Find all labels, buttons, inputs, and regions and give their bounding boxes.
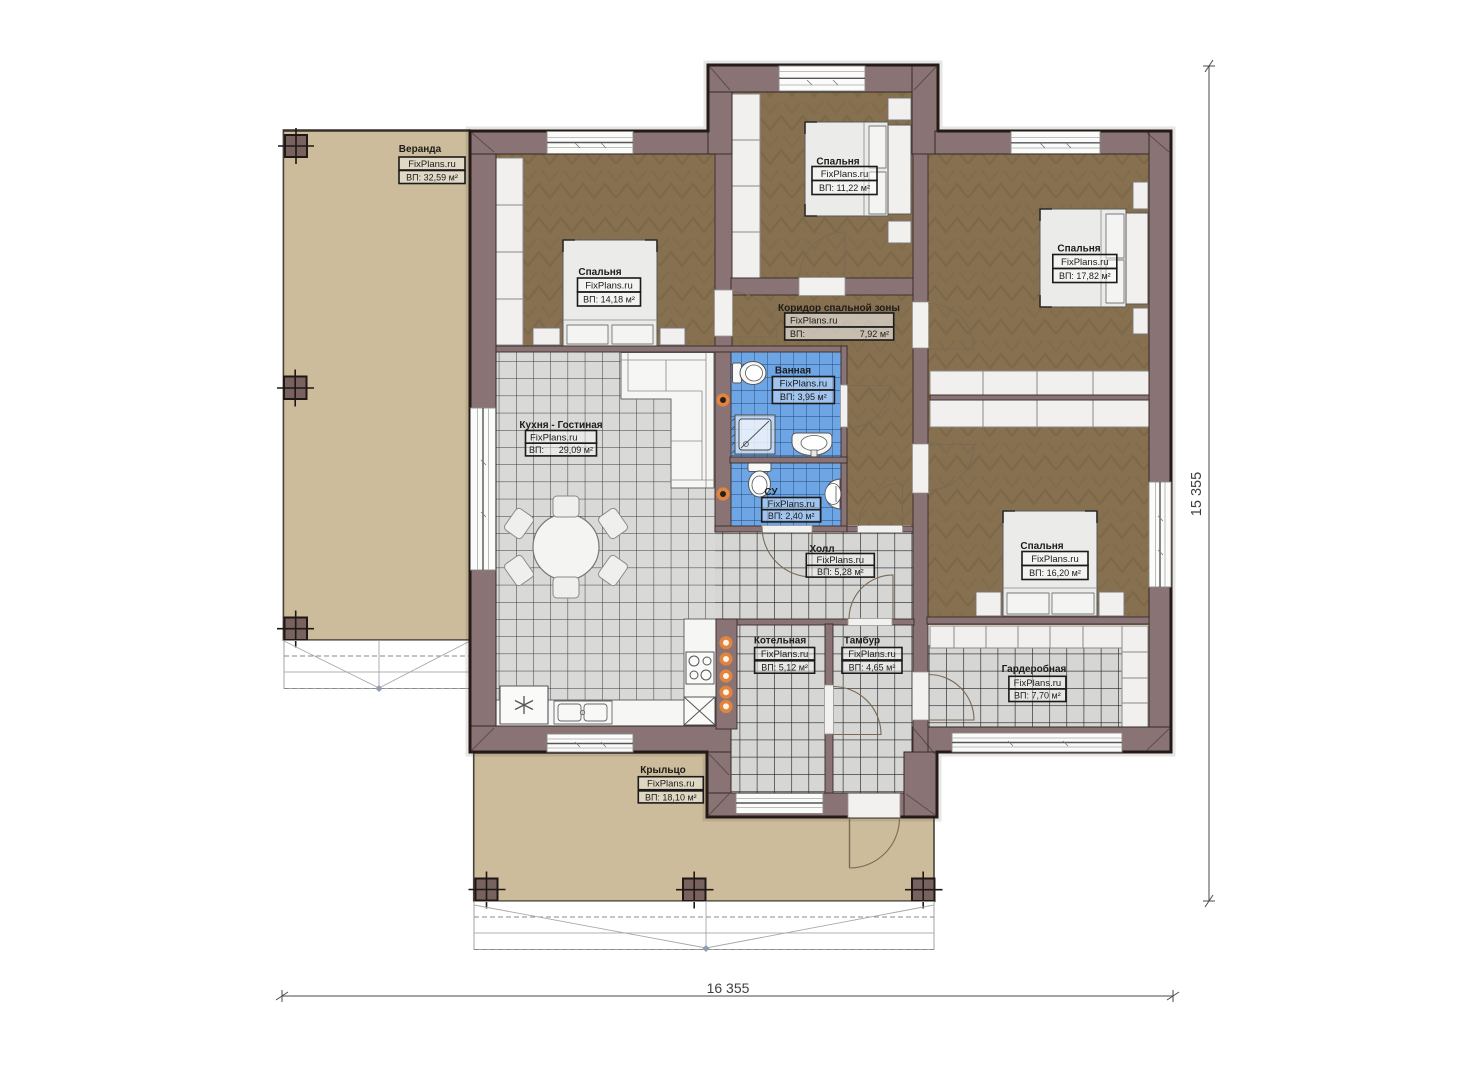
svg-text:FixPlans.ru: FixPlans.ru xyxy=(821,169,869,180)
svg-text:ВП: 18,10 м²: ВП: 18,10 м² xyxy=(645,792,697,802)
svg-text:ВП:: ВП: xyxy=(529,445,544,455)
svg-text:FixPlans.ru: FixPlans.ru xyxy=(780,379,828,390)
svg-text:FixPlans.ru: FixPlans.ru xyxy=(790,316,838,327)
svg-text:ВП: 5,28 м²: ВП: 5,28 м² xyxy=(817,567,864,577)
svg-text:ВП: 14,18 м²: ВП: 14,18 м² xyxy=(583,295,635,305)
svg-text:FixPlans.ru: FixPlans.ru xyxy=(530,433,578,444)
svg-text:ВП: 7,70 м²: ВП: 7,70 м² xyxy=(1014,691,1061,701)
svg-text:Крыльцо: Крыльцо xyxy=(640,765,686,776)
svg-text:29,09 м²: 29,09 м² xyxy=(559,445,593,455)
svg-text:Тамбур: Тамбур xyxy=(844,635,880,647)
svg-text:FixPlans.ru: FixPlans.ru xyxy=(1031,554,1079,565)
svg-text:Котельная: Котельная xyxy=(754,636,807,647)
svg-text:ВП: 4,65 м²: ВП: 4,65 м² xyxy=(849,663,896,673)
svg-text:FixPlans.ru: FixPlans.ru xyxy=(408,159,456,170)
svg-text:Ванная: Ванная xyxy=(775,366,811,377)
svg-text:ВП: 16,20 м²: ВП: 16,20 м² xyxy=(1029,568,1081,578)
svg-text:ВП: 2,40 м²: ВП: 2,40 м² xyxy=(768,511,815,521)
svg-text:15 355: 15 355 xyxy=(1189,472,1205,516)
svg-text:ВП: 11,22 м²: ВП: 11,22 м² xyxy=(819,183,870,193)
svg-text:FixPlans.ru: FixPlans.ru xyxy=(767,499,815,510)
svg-text:Веранда: Веранда xyxy=(399,144,442,155)
svg-text:ВП: 32,59 м²: ВП: 32,59 м² xyxy=(406,173,458,183)
svg-text:FixPlans.ru: FixPlans.ru xyxy=(647,779,695,790)
svg-text:ВП: 17,82 м²: ВП: 17,82 м² xyxy=(1059,271,1111,281)
svg-text:FixPlans.ru: FixPlans.ru xyxy=(1014,678,1062,689)
svg-text:16 355: 16 355 xyxy=(707,980,750,996)
svg-text:ВП: 3,95 м²: ВП: 3,95 м² xyxy=(780,392,827,402)
svg-text:Кухня - Гостиная: Кухня - Гостиная xyxy=(519,420,602,431)
svg-text:Спальня: Спальня xyxy=(1057,244,1100,255)
svg-text:FixPlans.ru: FixPlans.ru xyxy=(817,555,865,566)
svg-text:FixPlans.ru: FixPlans.ru xyxy=(1061,257,1109,268)
svg-text:ВП:: ВП: xyxy=(790,329,805,339)
svg-text:7,92 м²: 7,92 м² xyxy=(860,329,889,339)
svg-text:Гардеробная: Гардеробная xyxy=(1002,663,1067,675)
svg-text:СУ: СУ xyxy=(764,487,778,498)
svg-text:FixPlans.ru: FixPlans.ru xyxy=(585,281,633,292)
svg-text:FixPlans.ru: FixPlans.ru xyxy=(848,649,896,660)
svg-text:FixPlans.ru: FixPlans.ru xyxy=(761,649,809,660)
svg-text:Спальня: Спальня xyxy=(578,267,621,278)
svg-text:ВП: 5,12 м²: ВП: 5,12 м² xyxy=(761,663,808,673)
svg-text:Спальня: Спальня xyxy=(1020,541,1063,552)
